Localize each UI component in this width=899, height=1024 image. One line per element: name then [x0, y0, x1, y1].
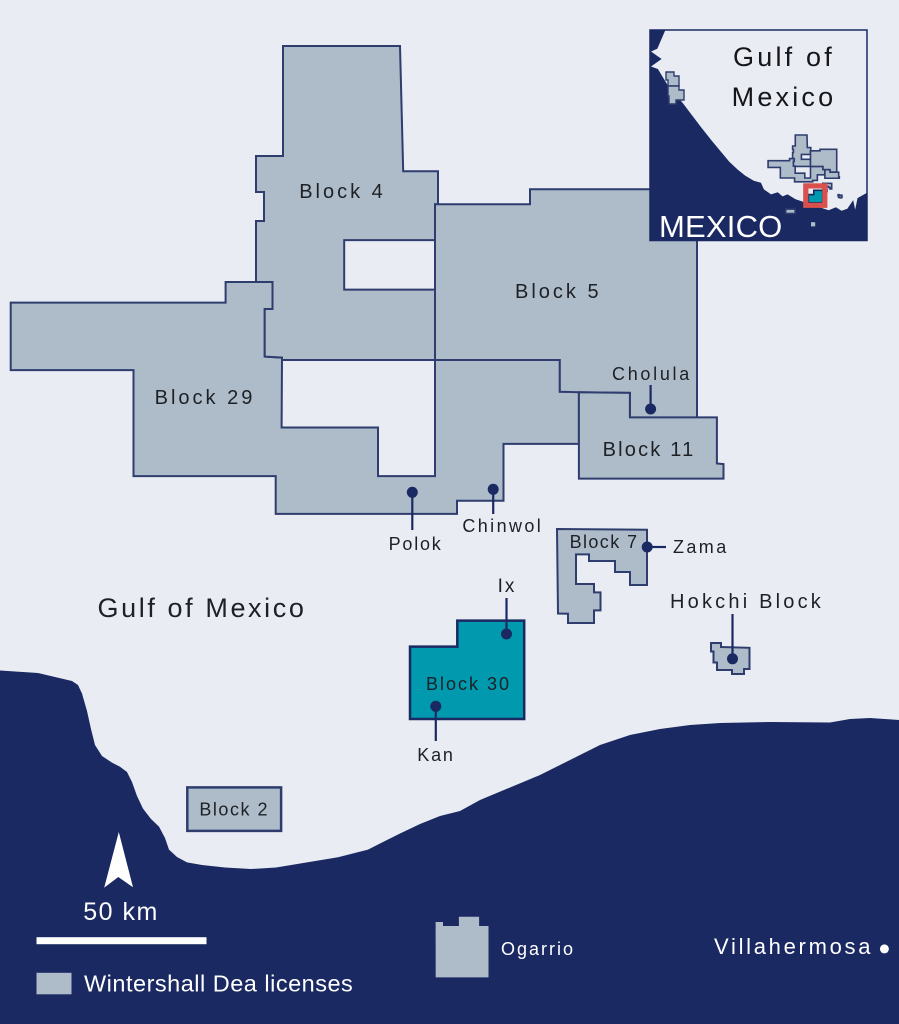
svg-text:Block 30: Block 30 [426, 674, 511, 694]
svg-text:Ogarrio: Ogarrio [501, 939, 575, 959]
svg-text:Gulf of: Gulf of [733, 42, 835, 72]
svg-text:MEXICO: MEXICO [659, 209, 783, 244]
svg-text:Block 5: Block 5 [515, 281, 602, 303]
svg-text:Wintershall Dea licenses: Wintershall Dea licenses [84, 971, 353, 997]
svg-text:Block 7: Block 7 [570, 532, 639, 552]
svg-text:Polok: Polok [389, 534, 443, 554]
svg-text:Block 11: Block 11 [603, 439, 696, 461]
svg-text:Hokchi Block: Hokchi Block [670, 591, 824, 613]
svg-text:Ix: Ix [498, 576, 517, 597]
svg-text:Chinwol: Chinwol [462, 516, 543, 536]
svg-text:Kan: Kan [417, 745, 454, 765]
svg-text:Cholula: Cholula [612, 364, 692, 384]
svg-text:Block 29: Block 29 [155, 387, 256, 409]
svg-text:Gulf of Mexico: Gulf of Mexico [98, 593, 307, 623]
svg-text:Block 4: Block 4 [299, 181, 386, 203]
svg-text:Zama: Zama [673, 537, 729, 557]
svg-text:Block 2: Block 2 [199, 800, 269, 820]
svg-text:50 km: 50 km [83, 898, 159, 926]
svg-text:Villahermosa: Villahermosa [714, 934, 873, 959]
svg-text:Mexico: Mexico [732, 82, 837, 112]
